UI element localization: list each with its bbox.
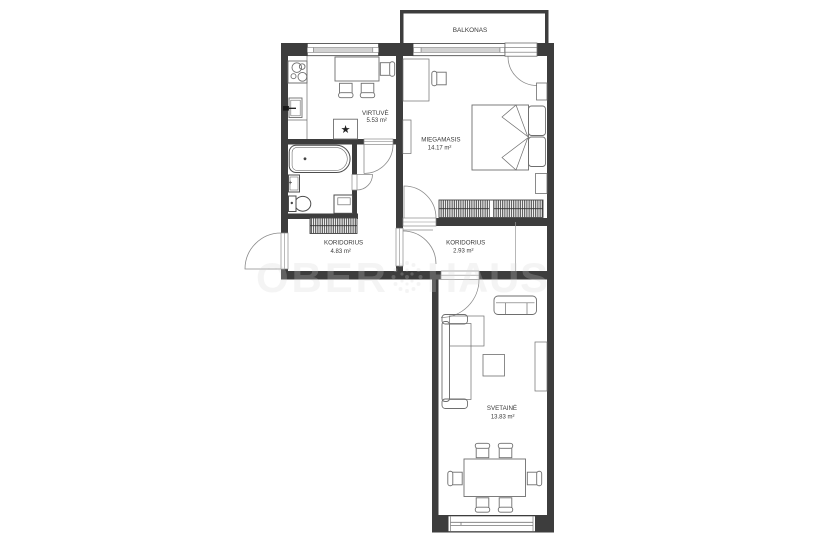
- svg-text:KORIDORIUS: KORIDORIUS: [446, 239, 485, 246]
- svg-text:HAUS: HAUS: [427, 254, 548, 301]
- svg-text:OBER: OBER: [256, 254, 386, 301]
- svg-text:5.53 m²: 5.53 m²: [367, 118, 387, 124]
- svg-text:★: ★: [341, 124, 351, 136]
- svg-text:SVETAINĖ: SVETAINĖ: [487, 405, 517, 412]
- svg-text:14.17 m²: 14.17 m²: [428, 146, 452, 152]
- svg-text:MIEGAMASIS: MIEGAMASIS: [421, 137, 460, 144]
- svg-text:13.83 m²: 13.83 m²: [491, 414, 515, 420]
- svg-text:BALKONAS: BALKONAS: [453, 27, 487, 34]
- svg-text:KORIDORIUS: KORIDORIUS: [324, 240, 363, 247]
- svg-text:VIRTUVĖ: VIRTUVĖ: [362, 110, 389, 117]
